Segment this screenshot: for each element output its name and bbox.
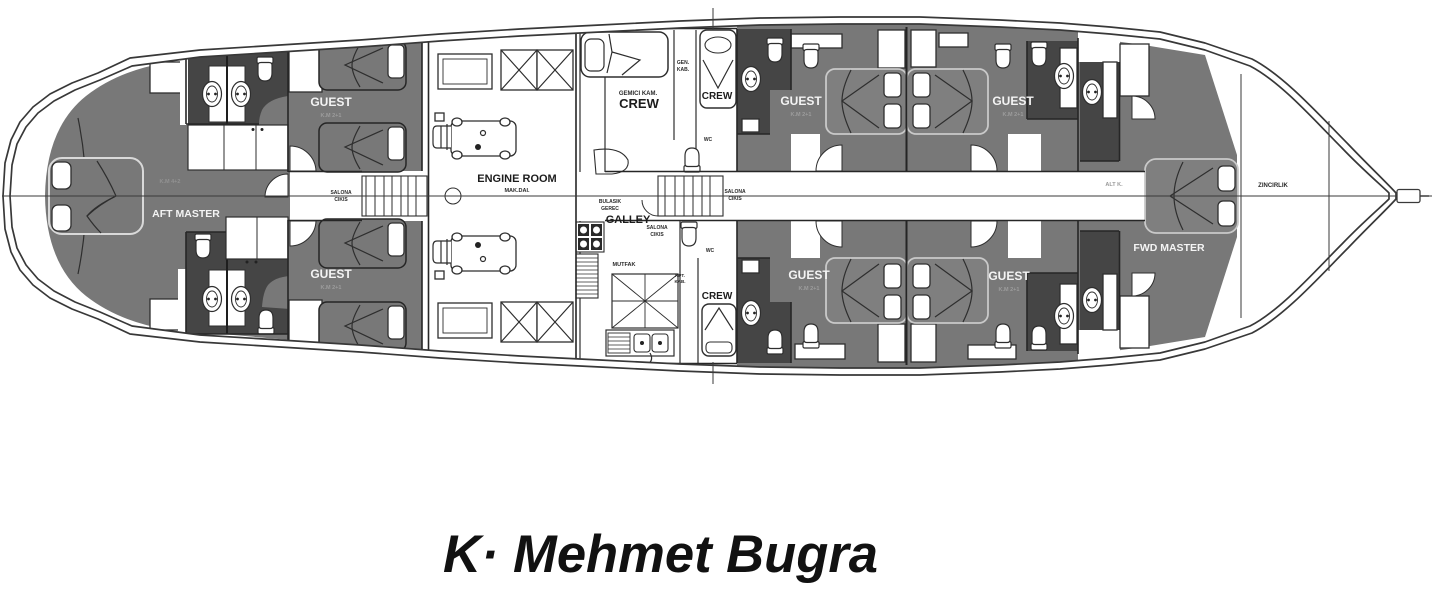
svg-text:ENGINE ROOM: ENGINE ROOM xyxy=(477,173,556,185)
svg-text:GUEST: GUEST xyxy=(310,95,352,109)
svg-text:KAB.: KAB. xyxy=(677,67,690,73)
svg-text:WC: WC xyxy=(706,248,715,254)
svg-text:KAB.: KAB. xyxy=(675,279,686,284)
svg-text:MAK.DAI.: MAK.DAI. xyxy=(504,188,530,194)
svg-text:GUEST: GUEST xyxy=(310,267,352,281)
svg-text:K.M 2+1: K.M 2+1 xyxy=(1003,112,1024,118)
svg-text:CIKIS: CIKIS xyxy=(650,232,664,238)
svg-text:CIKIS: CIKIS xyxy=(728,196,742,202)
svg-text:KPT.: KPT. xyxy=(675,273,685,278)
svg-text:SALONA: SALONA xyxy=(724,189,746,195)
svg-text:K.M 4+2: K.M 4+2 xyxy=(160,179,181,185)
svg-text:GEN.: GEN. xyxy=(677,60,690,66)
svg-text:K.M 2+1: K.M 2+1 xyxy=(321,113,342,119)
svg-text:GEREC: GEREC xyxy=(601,206,619,212)
svg-text:CREW: CREW xyxy=(619,96,659,111)
svg-text:K.M 2+1: K.M 2+1 xyxy=(799,286,820,292)
svg-text:GUEST: GUEST xyxy=(988,269,1030,283)
svg-text:GALLEY: GALLEY xyxy=(606,214,651,226)
svg-text:SALONA: SALONA xyxy=(646,225,668,231)
svg-text:K.M 2+1: K.M 2+1 xyxy=(321,285,342,291)
svg-text:K.M 2+1: K.M 2+1 xyxy=(791,112,812,118)
svg-text:SALONA: SALONA xyxy=(330,190,352,196)
svg-text:FWD MASTER: FWD MASTER xyxy=(1133,242,1205,254)
svg-text:CREW: CREW xyxy=(702,91,733,102)
svg-text:WC: WC xyxy=(704,137,713,143)
svg-text:MUTFAK: MUTFAK xyxy=(613,262,636,268)
svg-text:CREW: CREW xyxy=(702,291,733,302)
svg-text:GUEST: GUEST xyxy=(992,94,1034,108)
svg-text:K.M 2+1: K.M 2+1 xyxy=(999,287,1020,293)
svg-text:ALT K.: ALT K. xyxy=(1105,182,1123,188)
svg-text:CIKIS: CIKIS xyxy=(334,197,348,203)
svg-text:K· Mehmet Bugra: K· Mehmet Bugra xyxy=(443,525,878,584)
svg-text:ZINCIRLIK: ZINCIRLIK xyxy=(1258,183,1288,189)
svg-text:GUEST: GUEST xyxy=(788,268,830,282)
svg-text:BULASIK: BULASIK xyxy=(599,199,622,205)
svg-text:AFT MASTER: AFT MASTER xyxy=(152,208,220,220)
svg-text:GUEST: GUEST xyxy=(780,94,822,108)
